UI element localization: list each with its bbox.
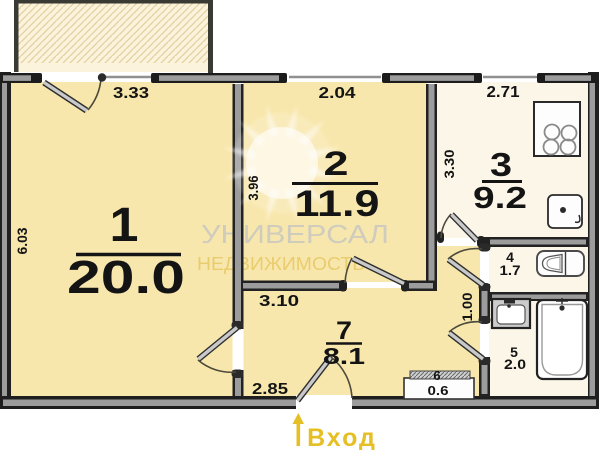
svg-text:11.9: 11.9 — [295, 183, 380, 224]
svg-text:3: 3 — [490, 146, 512, 183]
svg-text:6: 6 — [433, 368, 440, 383]
svg-text:3.33: 3.33 — [113, 85, 149, 102]
svg-text:3.10: 3.10 — [259, 293, 299, 310]
svg-text:8.1: 8.1 — [323, 343, 365, 369]
svg-text:НЕДВИЖИМОСТЬ: НЕДВИЖИМОСТЬ — [197, 254, 365, 274]
svg-text:2.71: 2.71 — [487, 84, 520, 101]
svg-text:2: 2 — [324, 145, 349, 183]
svg-text:3.96: 3.96 — [245, 175, 261, 200]
svg-text:2.85: 2.85 — [252, 381, 288, 398]
svg-text:6.03: 6.03 — [14, 227, 30, 254]
svg-text:20.0: 20.0 — [67, 251, 185, 303]
svg-text:1.7: 1.7 — [500, 262, 521, 278]
svg-text:Вход: Вход — [307, 424, 377, 450]
svg-text:2.04: 2.04 — [319, 85, 356, 102]
svg-text:3.30: 3.30 — [441, 149, 457, 178]
svg-text:9.2: 9.2 — [473, 180, 527, 215]
svg-text:7: 7 — [336, 317, 352, 345]
svg-text:2.0: 2.0 — [504, 356, 526, 372]
svg-text:0.6: 0.6 — [428, 383, 449, 398]
svg-text:1: 1 — [110, 199, 139, 252]
svg-text:1.00: 1.00 — [459, 292, 475, 321]
